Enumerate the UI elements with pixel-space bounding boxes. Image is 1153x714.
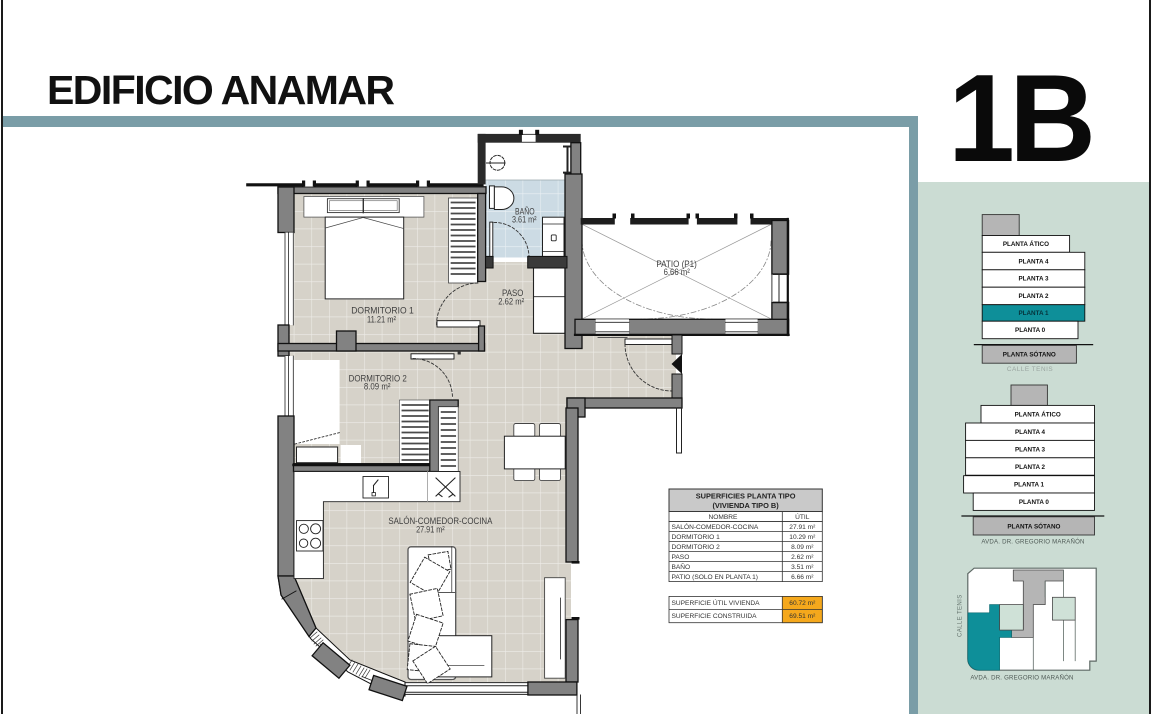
svg-text:11.21 m²: 11.21 m² [367, 315, 396, 325]
svg-text:ÚTIL: ÚTIL [795, 512, 810, 521]
svg-text:SALÓN-COMEDOR-COCINA: SALÓN-COMEDOR-COCINA [672, 522, 759, 531]
svg-text:60.72 m²: 60.72 m² [789, 600, 816, 607]
svg-text:2.62 m²: 2.62 m² [498, 296, 524, 306]
svg-text:AVDA. DR. GREGORIO MARAÑÓN: AVDA. DR. GREGORIO MARAÑÓN [981, 539, 1084, 546]
svg-text:SUPERFICIES PLANTA TIPO: SUPERFICIES PLANTA TIPO [696, 492, 796, 501]
svg-text:PLANTA 4: PLANTA 4 [1018, 258, 1049, 265]
svg-text:2.62 m²: 2.62 m² [791, 554, 814, 561]
svg-text:PLANTA 1: PLANTA 1 [1018, 310, 1049, 317]
svg-text:PLANTA ÁTICO: PLANTA ÁTICO [1003, 239, 1049, 248]
svg-text:69.51 m²: 69.51 m² [789, 613, 816, 620]
svg-text:PLANTA SÓTANO: PLANTA SÓTANO [1003, 350, 1056, 359]
svg-text:PLANTA 3: PLANTA 3 [1018, 276, 1049, 283]
svg-text:PLANTA 1: PLANTA 1 [1014, 482, 1045, 489]
svg-text:PLANTA 0: PLANTA 0 [1015, 327, 1046, 334]
svg-text:DORMITORIO 1: DORMITORIO 1 [672, 534, 721, 541]
svg-text:PLANTA 2: PLANTA 2 [1015, 464, 1046, 471]
svg-text:PLANTA 3: PLANTA 3 [1015, 446, 1046, 453]
svg-text:CALLE TENIS: CALLE TENIS [958, 594, 964, 637]
svg-text:PASO: PASO [672, 554, 690, 561]
svg-text:PLANTA 2: PLANTA 2 [1018, 293, 1049, 300]
svg-text:3.61 m²: 3.61 m² [512, 214, 537, 224]
svg-text:PLANTA 4: PLANTA 4 [1015, 429, 1046, 436]
svg-text:6.66 m²: 6.66 m² [791, 574, 814, 581]
svg-text:BAÑO: BAÑO [672, 562, 691, 571]
svg-text:3.51 m²: 3.51 m² [791, 564, 814, 571]
svg-text:8.09 m²: 8.09 m² [364, 382, 391, 392]
svg-text:27.91 m²: 27.91 m² [416, 524, 445, 534]
svg-text:PLANTA ÁTICO: PLANTA ÁTICO [1015, 410, 1061, 419]
svg-text:(VIVIENDA TIPO B): (VIVIENDA TIPO B) [712, 501, 779, 510]
svg-text:PLANTA SÓTANO: PLANTA SÓTANO [1007, 521, 1060, 530]
svg-text:CALLE TENIS: CALLE TENIS [1007, 366, 1053, 373]
svg-text:6.66 m²: 6.66 m² [664, 267, 690, 277]
svg-text:AVDA. DR. GREGORIO MARAÑÓN: AVDA. DR. GREGORIO MARAÑÓN [970, 675, 1073, 682]
svg-text:8.09 m²: 8.09 m² [791, 544, 814, 551]
svg-text:10.29 m²: 10.29 m² [789, 534, 816, 541]
svg-text:NOMBRE: NOMBRE [709, 514, 739, 521]
svg-text:PATIO (SOLO EN PLANTA 1): PATIO (SOLO EN PLANTA 1) [672, 574, 758, 581]
svg-text:DORMITORIO 2: DORMITORIO 2 [672, 544, 721, 551]
svg-text:SUPERFICIE ÚTIL VIVIENDA: SUPERFICIE ÚTIL VIVIENDA [672, 598, 761, 607]
svg-text:SUPERFICIE CONSTRUIDA: SUPERFICIE CONSTRUIDA [672, 613, 758, 620]
svg-text:PLANTA 0: PLANTA 0 [1019, 499, 1050, 506]
svg-text:27.91 m²: 27.91 m² [789, 524, 816, 531]
